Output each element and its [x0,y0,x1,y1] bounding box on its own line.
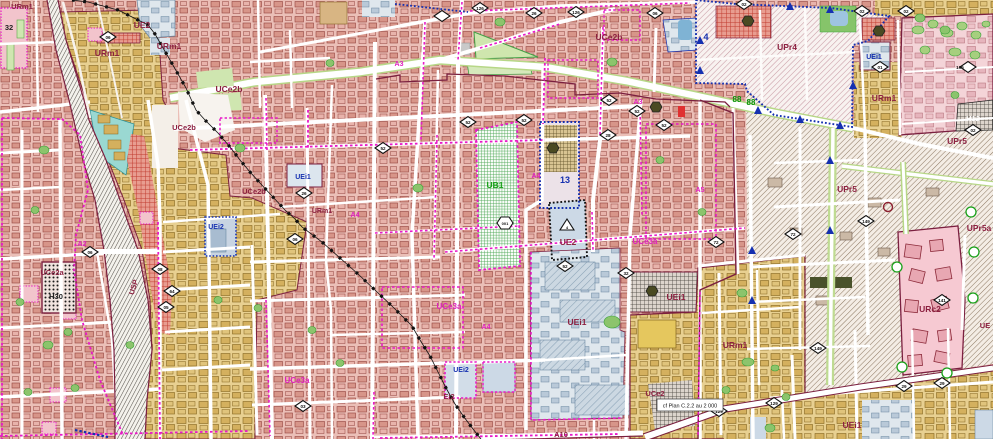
svg-text:A3: A3 [634,99,643,106]
svg-text:UEi2: UEi2 [453,367,469,374]
svg-text:05: 05 [163,305,169,310]
svg-text:06: 06 [292,237,298,242]
svg-text:URm1: URm1 [157,41,182,51]
svg-text:UEi2: UEi2 [208,224,224,231]
svg-text:URm1: URm1 [312,208,332,215]
svg-text:H12: H12 [966,114,980,123]
svg-text:URm1: URm1 [11,2,33,11]
svg-text:cf Plan C.2.2 au 2 000: cf Plan C.2.2 au 2 000 [663,404,717,410]
svg-text:UPr5a: UPr5a [967,223,992,233]
svg-text:52: 52 [661,123,667,128]
svg-text:08: 08 [157,267,163,272]
svg-text:126: 126 [572,10,580,15]
svg-text:URc2: URc2 [919,304,941,314]
svg-text:32: 32 [5,23,13,32]
svg-text:UPr5: UPr5 [947,136,967,146]
svg-text:URm1: URm1 [723,340,748,350]
svg-text:UEi1: UEi1 [568,317,587,327]
svg-text:URm1: URm1 [95,48,120,58]
svg-text:64: 64 [169,289,175,294]
svg-text:A4: A4 [482,324,491,331]
svg-text:72: 72 [713,240,719,245]
svg-text:Ei2: Ei2 [443,392,454,401]
svg-text:02: 02 [970,128,976,133]
svg-text:UCe2: UCe2 [645,389,664,398]
svg-text:UCe2b: UCe2b [242,187,266,196]
svg-text:001: 001 [502,221,509,226]
svg-text:52: 52 [521,118,527,123]
svg-text:88: 88 [733,95,742,104]
svg-text:4: 4 [703,32,708,42]
svg-text:196: 196 [956,65,964,70]
svg-text:A2: A2 [78,241,87,248]
svg-text:141: 141 [938,298,946,303]
svg-text:UCe2b: UCe2b [172,123,196,132]
svg-text:UEi1: UEi1 [295,174,311,181]
svg-text:UCe2b: UCe2b [216,84,243,94]
svg-text:28: 28 [605,133,611,138]
svg-text:29: 29 [939,381,945,386]
svg-text:06: 06 [105,35,111,40]
svg-text:UCe3a: UCe3a [437,302,462,311]
svg-text:72: 72 [790,232,796,237]
svg-text:52: 52 [606,98,612,103]
svg-text:UEi1: UEi1 [866,54,882,61]
svg-text:03: 03 [300,404,306,409]
svg-text:A5: A5 [696,187,705,194]
svg-text:06: 06 [87,250,93,255]
svg-text:UCe3a: UCe3a [285,376,310,385]
svg-text:URm1: URm1 [872,93,897,103]
svg-text:26: 26 [301,191,307,196]
svg-text:UE2: UE2 [134,20,151,30]
svg-text:UPr5: UPr5 [837,184,857,194]
svg-text:UEi1: UEi1 [667,292,686,302]
svg-text:32: 32 [623,271,629,276]
svg-text:H30: H30 [49,292,63,301]
svg-text:52: 52 [562,264,568,269]
svg-text:UPr4: UPr4 [777,42,797,52]
svg-text:02: 02 [903,9,909,14]
svg-text:UCe2b: UCe2b [596,32,623,42]
svg-text:A4: A4 [532,173,541,180]
svg-text:A3: A3 [395,61,404,68]
svg-text:52: 52 [634,109,640,114]
svg-text:02: 02 [859,9,865,14]
svg-text:UE2: UE2 [560,237,577,247]
svg-text:129: 129 [770,401,778,406]
svg-text:UB1: UB1 [486,180,503,190]
svg-text:126: 126 [476,6,484,11]
svg-text:88: 88 [747,98,756,107]
svg-text:UEi1: UEi1 [843,420,862,430]
svg-text:A10: A10 [554,430,568,439]
svg-text:02: 02 [741,2,747,7]
svg-text:149: 149 [814,346,822,351]
svg-text:01: 01 [877,65,883,70]
svg-text:149: 149 [862,219,870,224]
svg-text:52: 52 [380,146,386,151]
svg-text:A4: A4 [351,212,360,219]
svg-text:52: 52 [465,120,471,125]
svg-text:UCe3a: UCe3a [633,237,658,246]
svg-text:UE: UE [980,321,990,330]
svg-text:06: 06 [652,11,658,16]
svg-text:29: 29 [901,384,907,389]
svg-text:UCe2a: UCe2a [40,268,64,277]
svg-text:26: 26 [531,11,537,16]
svg-text:13: 13 [560,175,570,185]
